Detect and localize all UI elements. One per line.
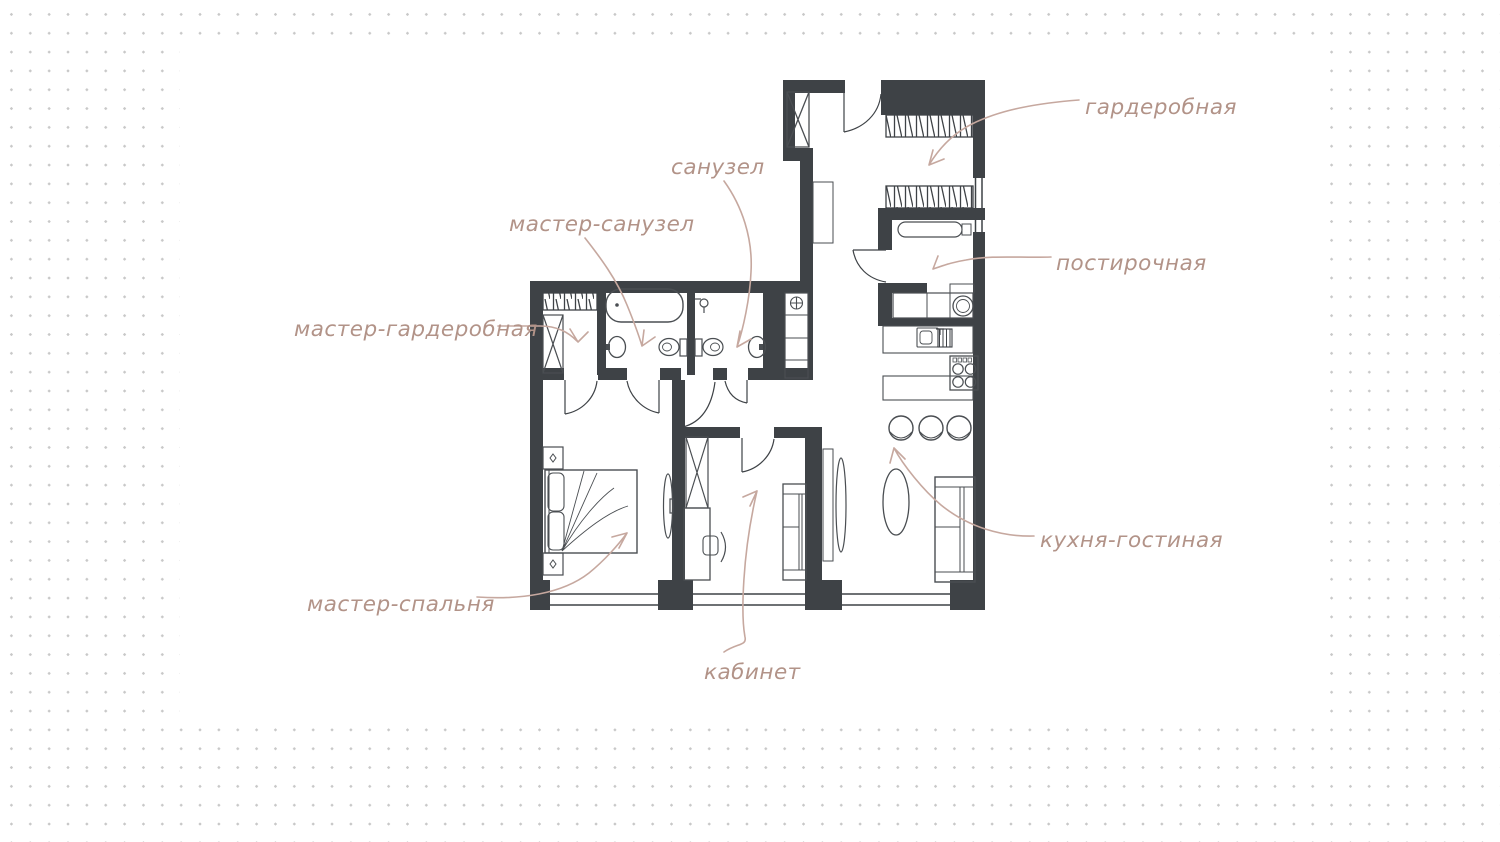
label-master-bedroom: мастер-спальня: [307, 592, 495, 617]
room-master-wardrobe: [543, 293, 597, 373]
tv: [664, 474, 674, 538]
label-kitchen-living: кухня-гостиная: [1040, 528, 1223, 553]
label-master-bathroom: мастер-санузел: [509, 212, 695, 237]
pillow: [548, 512, 564, 550]
windows: [550, 178, 982, 605]
window-office: [693, 594, 805, 605]
nightstand: [543, 447, 563, 469]
kitchen-counter: [883, 326, 973, 353]
bar-stool: [919, 416, 943, 440]
hall-console: [813, 182, 833, 243]
laundry-shelf: [950, 284, 974, 293]
toilet: [695, 339, 723, 357]
arrow-laundry: [933, 256, 1051, 269]
bar-stool: [947, 416, 971, 440]
utility-cabinet: [785, 293, 808, 378]
room-labels: гардеробная постирочная кухня-гостиная с…: [294, 95, 1237, 685]
blanket: [562, 471, 628, 551]
desk: [684, 508, 710, 580]
floor-plan: гардеробная постирочная кухня-гостиная с…: [0, 0, 1500, 842]
office-door: [742, 438, 774, 472]
tv: [823, 449, 846, 561]
room-bathroom: [695, 299, 766, 358]
ironing-board: [898, 222, 962, 237]
master-wardrobe-door: [565, 380, 597, 414]
bar-counter: [883, 376, 973, 400]
label-office: кабинет: [704, 660, 802, 685]
page-background: гардеробная постирочная кухня-гостиная с…: [0, 0, 1500, 842]
bar-stool: [889, 416, 913, 440]
office-chair: [703, 532, 726, 562]
window-living-room: [842, 594, 950, 605]
arrow-bathroom: [724, 181, 751, 347]
arrow-master-bedroom: [477, 533, 627, 598]
arrow-kitchen-living: [890, 448, 1034, 536]
washing-machine: [953, 296, 973, 316]
shower-icon: [695, 299, 708, 313]
ironing-board-bracket: [962, 224, 971, 235]
entrance-door: [844, 93, 881, 132]
window-side: [976, 178, 983, 232]
clothes-rack: [886, 186, 973, 208]
wardrobe-cabinet: [686, 437, 708, 508]
nightstand: [543, 553, 563, 575]
window-master-bedroom: [550, 594, 658, 605]
label-bathroom: санузел: [671, 155, 765, 180]
toilet: [659, 339, 687, 357]
fan-icon: [791, 297, 803, 309]
sink: [606, 337, 626, 358]
pillow: [548, 473, 564, 511]
room-master-bathroom: [606, 289, 687, 358]
clothes-rack: [543, 293, 597, 310]
master-bathroom-door: [627, 380, 659, 413]
clothes-rack: [886, 115, 973, 137]
bathroom-door: [725, 380, 747, 403]
bathtub-drain: [615, 303, 619, 307]
label-master-wardrobe: мастер-гардеробная: [294, 317, 538, 342]
sofa: [935, 477, 975, 582]
sofa: [783, 484, 806, 580]
room-laundry: [893, 222, 974, 318]
shaft-box: [543, 315, 563, 373]
label-laundry: постирочная: [1056, 251, 1207, 276]
bedroom-hall-door: [683, 382, 715, 427]
label-wardrobe: гардеробная: [1085, 95, 1237, 120]
arrow-office: [724, 491, 757, 652]
dining-table: [883, 469, 909, 535]
laundry-door: [853, 250, 886, 282]
dish-rack: [938, 329, 952, 347]
